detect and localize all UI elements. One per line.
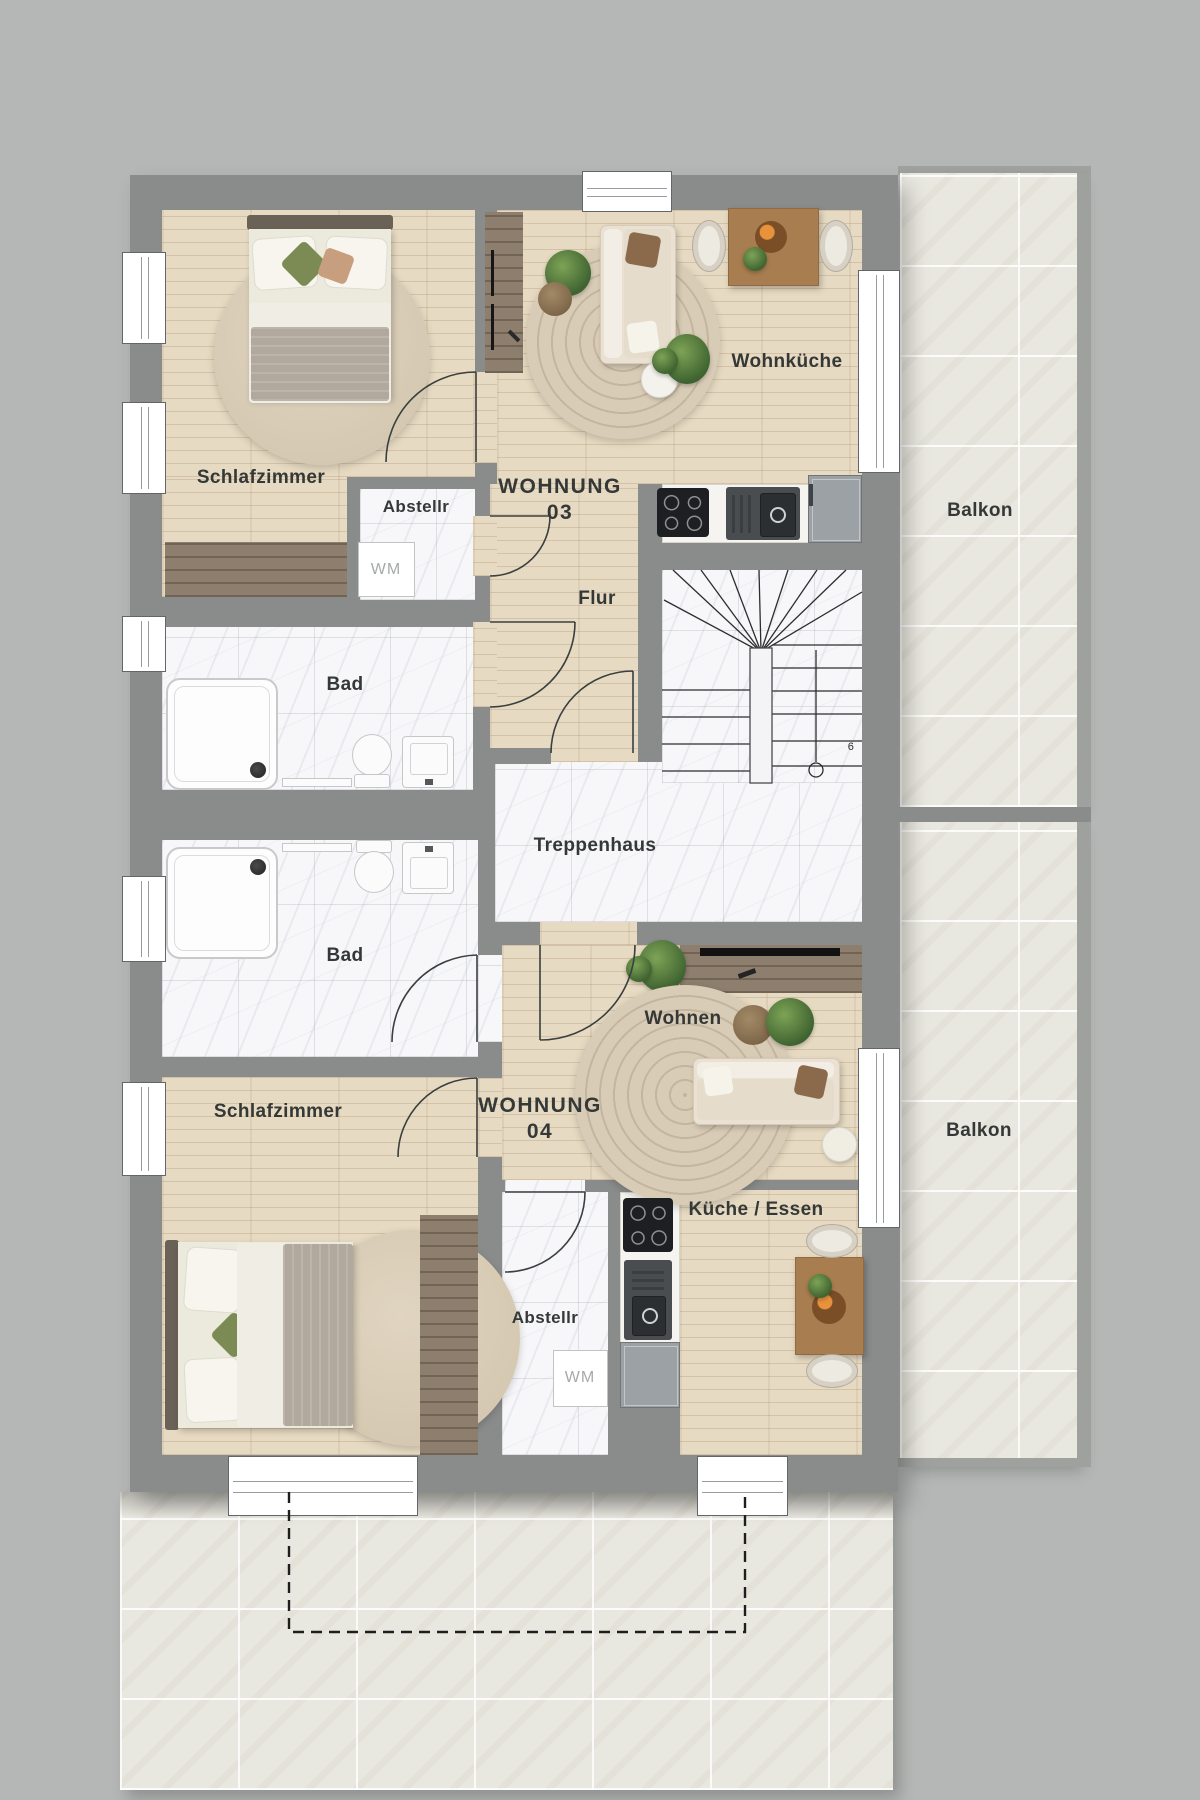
sink-drainer [632, 1266, 664, 1290]
sideboard-wohnen [680, 945, 862, 993]
sink-top [726, 487, 800, 540]
bed-duvet [237, 1243, 287, 1427]
side-table [538, 282, 572, 316]
sink-faucet [642, 1308, 658, 1324]
remote-icon [508, 330, 521, 343]
bed-pillow-top [183, 1246, 243, 1314]
label-bad-bottom: Bad [326, 945, 363, 967]
label-treppenhaus: Treppenhaus [534, 835, 657, 857]
remote-icon [738, 968, 757, 979]
monstera-leaf [626, 956, 652, 982]
door-opening-schlafzimmer-top [473, 372, 497, 463]
bed-pillow-bottom [183, 1357, 242, 1424]
sink-bad-bottom [402, 842, 454, 894]
monstera-leaf [652, 348, 678, 374]
fridge-lid [624, 1346, 678, 1406]
fridge-handle [809, 484, 813, 506]
sink-tap [425, 779, 433, 785]
toilet-top [352, 734, 392, 790]
fridge-bottom [620, 1342, 680, 1408]
label-wm-top: WM [371, 561, 401, 579]
window-schlafzimmer-bottom [122, 1082, 166, 1176]
table-plant [743, 247, 767, 271]
wardrobe-handle [491, 304, 494, 350]
pouf [822, 1127, 857, 1162]
label-wohnkueche: Wohnküche [732, 351, 843, 373]
window-bad-bottom [122, 876, 166, 962]
balcony-top-floor [900, 173, 1077, 807]
wardrobe-handle [491, 250, 494, 296]
door-opening-bad-top [473, 622, 497, 707]
terrace-floor [120, 1492, 893, 1790]
balcony-door-wohnen [858, 1048, 900, 1228]
label-schlafzimmer-top: Schlafzimmer [197, 467, 325, 489]
label-balkon-top: Balkon [947, 500, 1013, 522]
balcony-top-rail-right [1077, 173, 1091, 807]
shower-top [166, 678, 278, 790]
sofa-wohnkueche [600, 225, 676, 364]
cooktop-top [657, 488, 709, 537]
shower-bottom [166, 847, 278, 959]
closet-schlafzimmer-top [165, 542, 347, 597]
label-schlafzimmer-bottom: Schlafzimmer [214, 1101, 342, 1123]
floor-plan: Schlafzimmer Abstellr WOHNUNG 03 Wohnküc… [0, 0, 1200, 1800]
toilet-bowl [352, 734, 392, 776]
label-abstellraum-bottom: Abstellr [512, 1308, 579, 1328]
stairwell-floor [662, 570, 862, 783]
plant-coffee-table [766, 998, 814, 1046]
door-opening-wohnung-04 [540, 922, 637, 945]
door-opening-bad-bottom [478, 955, 502, 1042]
label-balkon-bottom: Balkon [946, 1120, 1012, 1142]
label-wohnung-04-line2: 04 [527, 1120, 553, 1144]
window-schlafzimmer-top-1 [122, 252, 166, 344]
sofa-cushion-white [626, 320, 660, 354]
sink-bottom [624, 1260, 672, 1340]
shower-drain [250, 762, 266, 778]
toilet-bottom [354, 840, 394, 896]
label-wohnung-03-line1: WOHNUNG [498, 475, 622, 499]
door-opening-abstellraum-top [473, 516, 497, 576]
wall-flur-treppenhaus [490, 748, 551, 764]
label-wohnung-04-line1: WOHNUNG [478, 1094, 602, 1118]
label-wohnung-03-line2: 03 [547, 501, 573, 525]
fridge-lid [812, 479, 860, 541]
window-wohnkueche-top [582, 171, 672, 212]
tv-icon [700, 948, 840, 956]
sink-inner [410, 857, 448, 889]
chair [819, 220, 853, 272]
sofa-cushion-brown [624, 231, 661, 268]
balcony-bottom-floor [900, 822, 1077, 1462]
terrace-door-kueche [697, 1456, 788, 1516]
bed-blanket [283, 1244, 353, 1426]
window-bad-top [122, 616, 166, 672]
sofa-cushion-white [702, 1065, 734, 1097]
room-flur-floor [490, 484, 638, 762]
label-bad-top: Bad [326, 674, 363, 696]
sink-inner [410, 743, 448, 775]
chair [692, 220, 726, 272]
door-opening-abstellraum-bottom [505, 1180, 585, 1192]
monstera-wohnkueche [664, 334, 710, 384]
closet-schlafzimmer-bottom [420, 1215, 478, 1455]
toilet-bowl [354, 851, 394, 893]
window-schlafzimmer-top-2 [122, 402, 166, 494]
label-wohnen: Wohnen [645, 1008, 722, 1030]
table-plant [808, 1274, 832, 1298]
balcony-bottom-rail-bottom [898, 1458, 1091, 1467]
bath-shelf-top [282, 778, 352, 787]
bed-top [247, 215, 393, 401]
toilet-tank [354, 774, 390, 788]
bed-bottom [165, 1240, 353, 1430]
bed-headboard [165, 1240, 179, 1430]
chair [806, 1354, 858, 1388]
sofa-backrest [604, 229, 622, 358]
fridge-top [808, 475, 862, 543]
sink-faucet [770, 507, 786, 523]
sofa-cushion-brown [793, 1064, 829, 1100]
sink-drainer [732, 495, 756, 533]
dining-table-top [728, 208, 819, 286]
sink-bad-top [402, 736, 454, 788]
label-flur: Flur [578, 588, 616, 610]
bed-headboard [247, 215, 393, 230]
balcony-bottom-rail-right [1077, 822, 1091, 1462]
sofa-wohnen [693, 1058, 840, 1125]
balcony-door-wohnkueche [858, 270, 900, 473]
label-wm-bottom: WM [565, 1369, 595, 1387]
wardrobe-wohnkueche [485, 212, 523, 373]
chair [806, 1224, 858, 1258]
sink-tap [425, 846, 433, 852]
label-kueche-essen: Küche / Essen [688, 1199, 823, 1221]
window-schlafzimmer-bottom-south [228, 1456, 418, 1516]
cooktop-bottom [623, 1198, 673, 1252]
shower-drain [250, 859, 266, 875]
balcony-divider-wall [898, 807, 1091, 822]
label-abstellraum-top: Abstellr [383, 497, 450, 517]
bath-shelf-bottom [282, 843, 352, 852]
label-stair-step-number: 6 [848, 741, 855, 753]
bed-blanket [251, 327, 389, 401]
dining-table-bottom [795, 1257, 864, 1355]
